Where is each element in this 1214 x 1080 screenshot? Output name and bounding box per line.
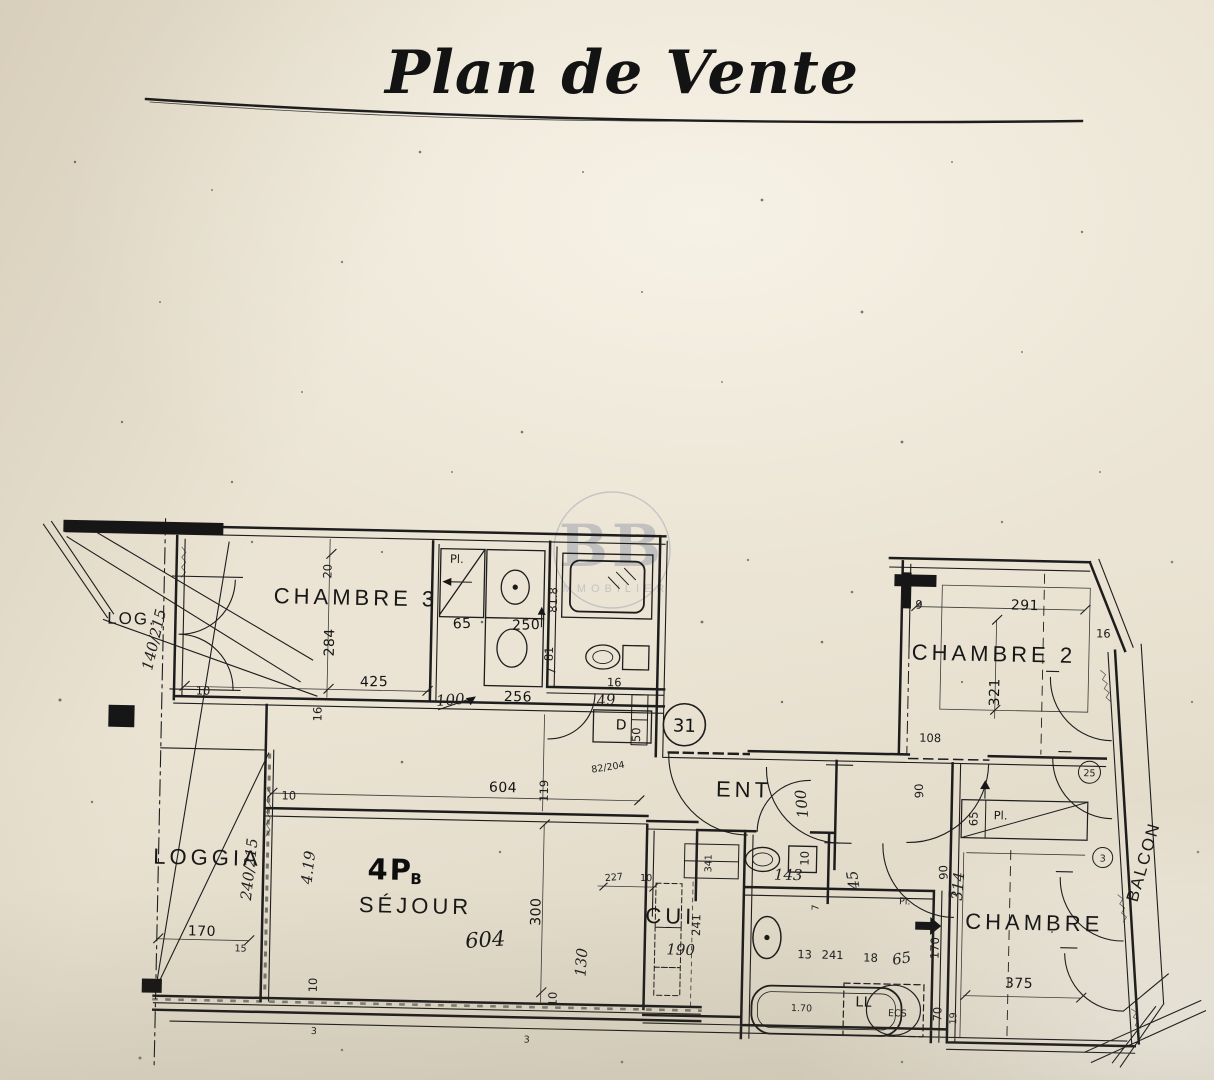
dim-90-b: 90: [936, 865, 950, 880]
page-title: Plan de Vente: [383, 38, 859, 108]
dim-190: 190: [666, 940, 695, 959]
dim-81-8: 81.8: [546, 587, 561, 613]
dim-13: 13: [797, 947, 812, 961]
scanned-floor-plan-page: Plan de Vente BB IMMOBILIER: [0, 0, 1214, 1080]
dim-10-f: 10: [797, 851, 811, 866]
dim-227: 227: [604, 872, 623, 884]
dim-291: 291: [1011, 598, 1040, 615]
watermark-initials: BB: [559, 512, 665, 580]
washer-label: LL: [855, 994, 872, 1010]
dim-143: 143: [774, 866, 803, 885]
title-block: Plan de Vente: [146, 38, 1082, 122]
room-labels: LOG. CHAMBRE 3 CHAMBRE 2 LOGGIA 4P B SÉJ…: [101, 580, 1169, 939]
dim-50: 50: [629, 727, 643, 742]
dim-241-a: 241: [689, 914, 703, 936]
dim-4-19: 4.19: [297, 849, 319, 886]
dim-49: 49: [595, 690, 618, 710]
handwriting-squiggles: [172, 547, 1149, 1028]
toilet-top-icon: [586, 645, 620, 670]
room-label-chambre: CHAMBRE: [965, 909, 1104, 937]
dim-170-b: 170: [928, 937, 942, 959]
lot-number: 31: [673, 716, 696, 737]
dim-314: 314: [948, 871, 969, 901]
dim-15: 15: [234, 943, 246, 954]
room-label-sejour: SÉJOUR: [359, 892, 473, 919]
dim-7-a: 7: [544, 667, 558, 675]
dim-425: 425: [360, 674, 388, 690]
dim-10-a: 10: [196, 684, 211, 698]
dim-119: 119: [537, 780, 551, 802]
dim-321: 321: [987, 678, 1004, 707]
dim-70: 70: [930, 1007, 944, 1022]
entrance-door-opening: [669, 752, 749, 754]
dim-10-c: 10: [306, 978, 320, 993]
dim-241-b: 241: [821, 948, 843, 962]
dim-81: 81: [542, 646, 556, 661]
dim-16-c: 16: [1096, 626, 1111, 640]
dim-65-a: 65: [452, 616, 472, 633]
floor-plan-svg: Plan de Vente BB IMMOBILIER: [0, 0, 1214, 1080]
floor-plan: 31 25 3 LOG. CHAMBRE 3 CHAMBRE 2 LOGGIA …: [32, 516, 1214, 1080]
window-shutter-arcs: [1044, 677, 1131, 1011]
dim-375: 375: [1005, 976, 1034, 993]
dim-250: 250: [512, 617, 541, 634]
closet-label-3: Pl.: [899, 896, 911, 907]
double-door-chambre3: [178, 579, 235, 690]
closet-label-1: Pl.: [450, 552, 464, 566]
unit-type-suffix: B: [410, 870, 422, 888]
dim-10-b: 10: [281, 788, 296, 802]
room-label-chambre2: CHAMBRE 2: [912, 640, 1077, 668]
entry-arrow-icon: [915, 917, 941, 936]
bidet-icon: [497, 629, 528, 668]
dim-10-d: 10: [545, 992, 559, 1007]
dim-9: 9: [915, 598, 923, 612]
dim-16-b: 16: [607, 675, 622, 689]
dim-341: 341: [703, 854, 714, 872]
dim-10-e: 10: [640, 873, 652, 884]
dim-300: 300: [528, 897, 545, 926]
dim-108: 108: [919, 731, 941, 745]
dim-65-b: 65: [966, 811, 980, 826]
dim-256: 256: [504, 689, 533, 706]
dim-45: 45: [843, 869, 864, 892]
dim-100-b: 100: [791, 788, 812, 819]
dim-604-a: 604: [489, 780, 518, 797]
tub-length-label: 1.70: [791, 1003, 812, 1014]
dim-65-c: 65: [891, 948, 913, 969]
dim-100-a: 100: [435, 690, 465, 710]
room-label-entrance: ENT: [716, 776, 773, 802]
dim-90-a: 90: [912, 783, 926, 798]
dim-19: 19: [948, 1012, 959, 1024]
cupboard-label: D: [616, 717, 628, 733]
closet-label-2: Pl.: [994, 808, 1008, 822]
dim-82-204: 82/204: [591, 760, 626, 776]
wall-mark-25: 25: [1083, 768, 1095, 779]
dim-3-a: 3: [311, 1026, 317, 1037]
dim-3-b: 3: [524, 1034, 530, 1045]
dim-170-a: 170: [188, 923, 217, 940]
dim-20: 20: [320, 564, 334, 579]
unit-type-label: 4P: [367, 852, 413, 887]
dim-16-a: 16: [310, 707, 324, 722]
room-label-cuisine: CUI: [645, 903, 695, 929]
room-label-chambre3: CHAMBRE 3: [274, 583, 439, 611]
water-heater-label: ECS: [888, 1008, 907, 1019]
dim-18-a: 18: [863, 951, 878, 965]
dim-130: 130: [571, 947, 591, 977]
dim-7-c: 7: [811, 904, 822, 910]
dim-284: 284: [322, 628, 339, 657]
kitchen-counter: [654, 883, 682, 996]
dimension-labels: 20 284 425 16 10 100 140/215 Pl. 65 250 …: [131, 545, 1113, 1057]
dim-604-b: 604: [464, 926, 506, 953]
wall-mark-3: 3: [1100, 853, 1106, 864]
